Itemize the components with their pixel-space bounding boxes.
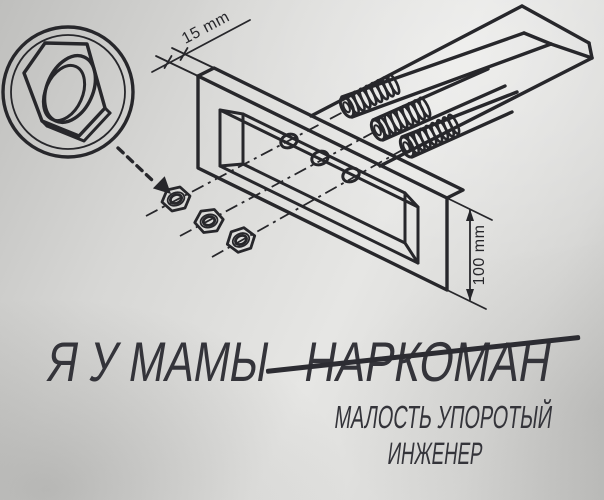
caption-i-am-mamas: Я У МАМЫ: [43, 334, 273, 390]
center-lines: [146, 111, 404, 257]
magnifier-detail-view: [3, 27, 133, 157]
dimension-depth-label: 15 mm: [179, 8, 232, 47]
meme-photo: 15 mm 100 mm Я У МАМЫ НАРКОМАН МАЛОСТЬ У…: [0, 0, 604, 500]
plate: [198, 68, 463, 290]
dimension-height-label: 100 mm: [471, 225, 488, 286]
caption-engineer: ИНЖЕНЕР: [386, 438, 485, 469]
dimension-height: 100 mm: [447, 198, 492, 309]
hex-nut-detail-icon: [24, 43, 110, 141]
caption-slightly-stoned: МАЛОСТЬ УПОРОТЫЙ: [333, 401, 555, 433]
detail-arrow-icon: [118, 148, 171, 194]
dimension-depth: 15 mm: [152, 8, 250, 76]
